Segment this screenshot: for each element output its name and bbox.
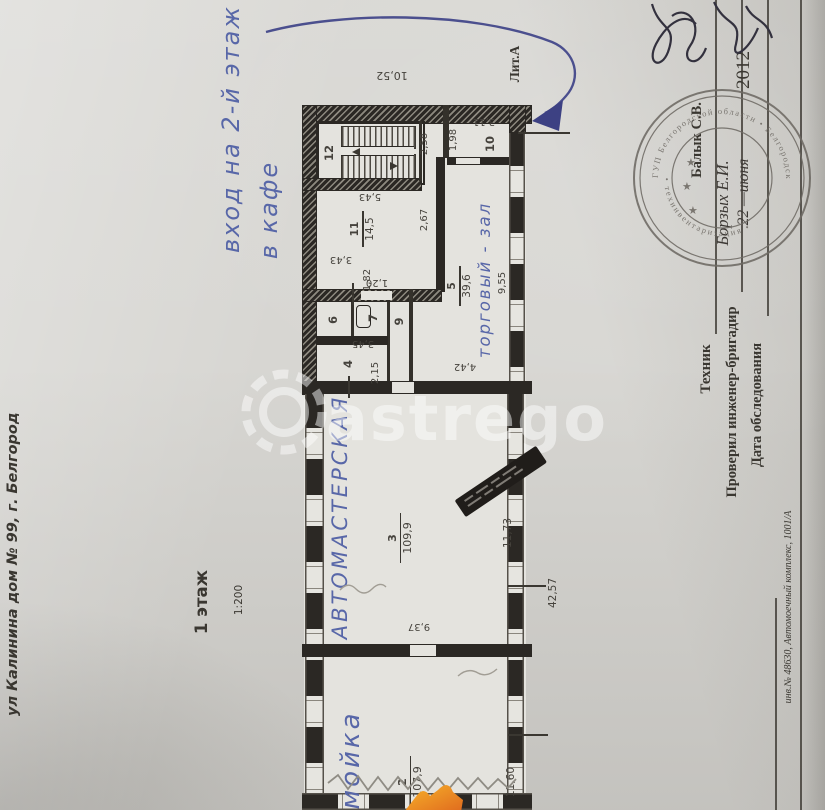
dim-11-60: 11,60: [506, 760, 517, 804]
room-6-number: 6: [327, 309, 339, 331]
technician-label: Техник: [698, 333, 714, 405]
room-11-label: 1114,5: [350, 211, 376, 247]
dim-3-11: 3,11: [464, 115, 504, 126]
dim-9-55: 9,55: [498, 263, 509, 303]
svg-text:★: ★: [688, 204, 698, 217]
form-line-survey-date: [767, 0, 769, 316]
room-5-label-number: 5: [447, 282, 458, 289]
dim-9-37: 9,37: [403, 620, 435, 631]
dim-2-58: 2,58: [420, 125, 431, 163]
dim-tick-right-2: [508, 734, 548, 736]
dim-5-43: 5,43: [350, 190, 390, 201]
dim-1-98: 1,98: [449, 120, 460, 160]
room-2-label: 2107,9: [397, 756, 424, 808]
dim-3-43: 3,43: [321, 253, 361, 264]
room-3-label: 3109,9: [387, 513, 414, 563]
wall-room6-room7: [351, 302, 354, 338]
survey-date-handwritten: 22 —июня: [736, 144, 753, 240]
checked-by-label: Проверил инженер-бригадир: [725, 289, 741, 515]
scale-label: 1:200: [234, 583, 245, 617]
wall-corridor-room5: [436, 157, 445, 292]
plan-right-wall-corner: [509, 105, 526, 133]
plan-left-wall-upper: [302, 105, 317, 395]
room-11-label-number: 11: [350, 222, 361, 237]
staircase-landing: [341, 146, 414, 156]
room-3-door-opening: [392, 382, 414, 393]
room-7-number: 7: [367, 307, 379, 329]
room-2-label-area: 107,9: [412, 766, 424, 798]
plan-right-wall-lower: [507, 392, 524, 793]
dim-1-20: 1,20: [360, 276, 394, 287]
dim-11-73: 11,73: [503, 510, 514, 556]
room-4-number: 4: [342, 354, 354, 374]
room-5-label: 539,6: [447, 266, 473, 306]
liter-label: Лит.А: [508, 36, 523, 92]
room3-handwritten-name: АВТОМАСТЕРСКАЯ: [329, 384, 352, 650]
room5-handwritten-name: торговый - зал: [476, 186, 494, 374]
survey-date-year: 2012: [734, 40, 755, 100]
room-3-label-number: 3: [387, 534, 399, 542]
floor-label: 1 этаж: [193, 569, 211, 635]
plan-left-wall-lower: [305, 392, 324, 793]
dim-42-57: 42,57: [548, 574, 559, 612]
dim-2-15: 2,15: [371, 352, 382, 394]
corridor-9-right-wall: [409, 289, 413, 382]
inventory-underline: [775, 598, 777, 810]
plan-right-wall-upper: [509, 130, 525, 392]
dim-tick-top-right: [518, 132, 570, 134]
dim-10-52: 10,52: [370, 69, 414, 81]
dim-tick-right-1: [508, 585, 546, 587]
room-2-label-number: 2: [397, 778, 409, 786]
room-9-number: 9: [393, 311, 405, 332]
dim-tick: [352, 283, 354, 305]
technician-name: Балык С.В.: [690, 92, 706, 188]
entry-note-line1: вход на 2-й этаж: [219, 0, 245, 266]
room-11-label-area: 14,5: [365, 217, 376, 240]
dim-2-67: 2,67: [420, 195, 431, 245]
inventory-note: инв.№ 48630, Автомоечный комплекс, 1001/…: [784, 482, 795, 732]
scanned-floor-plan-page: ул Калинина дом № 99, г. Белгород1 этаж1…: [0, 0, 825, 810]
page-edge-shadow: [801, 0, 825, 810]
entry-note-line2: в кафе: [257, 154, 283, 266]
room-12-number: 12: [323, 139, 335, 167]
survey-date-label: Дата обследования: [750, 315, 766, 495]
room-10-number: 10: [484, 131, 496, 157]
dim-3-45: 3,45: [343, 337, 383, 348]
address-label: ул Калинина дом № 99, г. Белгород: [6, 416, 22, 716]
staircase-lower-flight: [341, 154, 416, 179]
dim-4-42: 4,42: [445, 360, 485, 371]
room2-handwritten-name: мойка: [337, 694, 365, 810]
room-5-label-area: 39,6: [462, 274, 473, 297]
room-2-door-opening: [410, 645, 436, 656]
checked-by-name-handwritten: Борзых Е.И.: [714, 136, 732, 270]
room-3-label-area: 109,9: [402, 522, 414, 554]
